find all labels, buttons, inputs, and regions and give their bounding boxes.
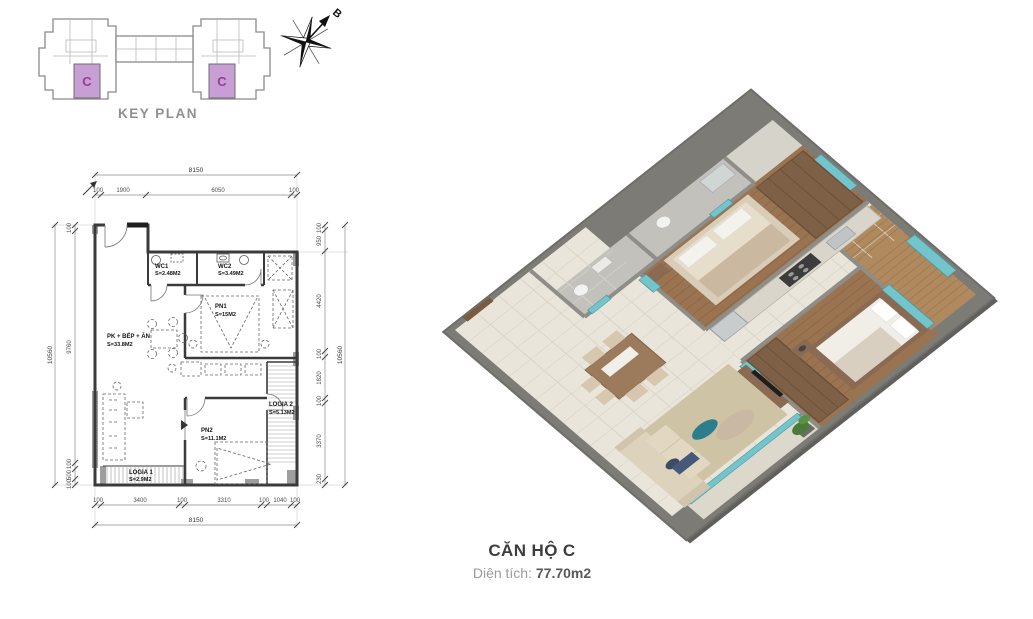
dim-label: 4420 (317, 294, 323, 308)
dim-label: 100 (93, 498, 104, 504)
key-plan-title: KEY PLAN (118, 106, 198, 121)
dim-label: 6050 (211, 188, 225, 194)
page: C C KEY PLAN B (0, 0, 1033, 619)
dim-label: 950 (317, 235, 323, 246)
dim-label: 1040 (273, 498, 287, 504)
floor-plan-2d: 8150 100 1900 6050 100 100 3400 100 3310… (25, 148, 360, 548)
render-3d (430, 40, 1033, 560)
key-plan-unit-c-right: C (209, 64, 235, 98)
dim-label: 100 (317, 222, 323, 233)
room-label-wc1: WC1 (155, 264, 169, 270)
room-area-logia2: S=5.13M2 (269, 410, 295, 416)
dim-label: 100 (93, 188, 104, 194)
key-plan-unit-c-left: C (74, 64, 100, 98)
unit-title: CĂN HỘ C (382, 541, 682, 561)
caption: CĂN HỘ C Diện tích: 77.70m2 (382, 541, 682, 581)
dim-label: 1900 (116, 188, 130, 194)
dim-label: 100 (317, 395, 323, 406)
furniture-outlines (103, 256, 293, 484)
room-label-pn2: PN2 (201, 428, 213, 434)
dim-label: 3310 (217, 498, 231, 504)
room-label-logia2: LOGIA 2 (269, 402, 293, 408)
compass-rose-icon: B (272, 2, 344, 80)
unit-area: Diện tích: 77.70m2 (382, 565, 682, 581)
dim-label: 100 (289, 188, 300, 194)
wc-fixtures (152, 254, 249, 265)
unit-c-label: C (217, 74, 227, 89)
room-area-living: S=33.8M2 (107, 342, 133, 348)
room-area-pn1: S=15M2 (215, 312, 236, 318)
dim-bottom-total: 8150 (189, 517, 204, 524)
dim-right-total: 10560 (337, 346, 344, 365)
dim-label: 100 (317, 348, 323, 359)
dim-top-total: 8150 (189, 167, 204, 174)
dim-label: 3400 (133, 498, 147, 504)
compass-north-label: B (330, 7, 344, 21)
dimension-lines (55, 175, 345, 525)
area-value: 77.70m2 (536, 565, 591, 581)
dim-label: 100 (259, 498, 270, 504)
area-label: Diện tích: (473, 565, 532, 581)
unit-c-label: C (82, 74, 92, 89)
dim-label: 230 (317, 473, 323, 484)
dim-label: 100 (67, 458, 73, 469)
room-label-pn1: PN1 (215, 304, 227, 310)
dim-left-total: 10560 (47, 346, 54, 365)
room-area-logia1: S=2.9M2 (129, 477, 152, 483)
key-plan: C C KEY PLAN (8, 4, 278, 129)
dim-label: 3370 (317, 434, 323, 448)
door-arcs (105, 225, 283, 416)
room-label-logia1: LOGIA 1 (129, 470, 153, 476)
dim-label: 100 (67, 222, 73, 233)
room-area-wc1: S=2.48M2 (155, 271, 181, 277)
dim-label: 500 (67, 469, 73, 480)
dimension-labels: 8150 100 1900 6050 100 100 3400 100 3310… (47, 167, 344, 524)
room-label-wc2: WC2 (218, 264, 232, 270)
room-area-wc2: S=3.49M2 (218, 271, 244, 277)
room-label-living: PK + BẾP + ĂN (107, 333, 150, 340)
dim-label: 100 (177, 498, 188, 504)
sliding-door-arrow (181, 420, 188, 430)
dim-label: 9760 (67, 340, 73, 354)
room-area-pn2: S=11.1M2 (201, 436, 226, 442)
dim-label: 100 (290, 498, 301, 504)
dim-label: 1820 (317, 371, 323, 385)
dim-label: 100 (67, 478, 73, 489)
